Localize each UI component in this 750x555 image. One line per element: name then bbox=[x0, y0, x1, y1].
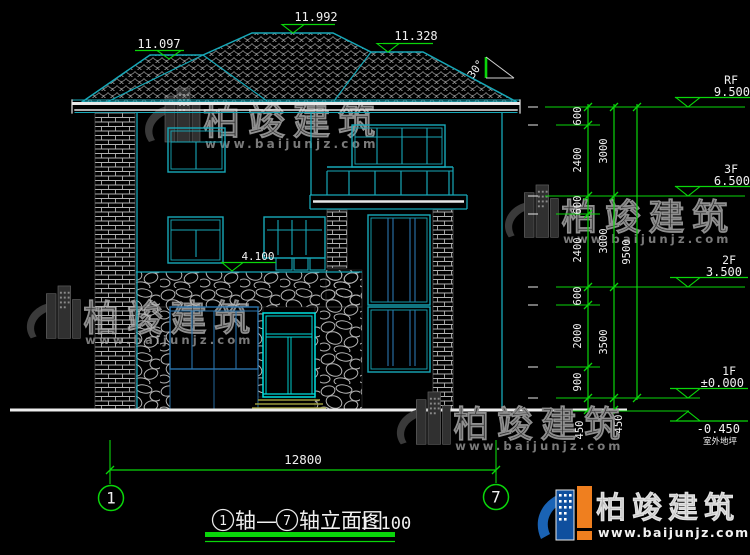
title-scale-text: 1:100 bbox=[360, 514, 411, 534]
dim-3500: 3500 bbox=[598, 329, 610, 354]
watermark-bottom bbox=[397, 392, 628, 453]
footer-logo: 柏竣建筑 www.baijunjz.com bbox=[538, 486, 750, 540]
cad-elevation-drawing: 柏竣建筑 www.baijunjz.com bbox=[0, 0, 750, 555]
left-brick-pier bbox=[95, 113, 135, 410]
dim-2400-a: 2400 bbox=[572, 147, 584, 172]
stone-top-marker: 4.100 bbox=[221, 250, 276, 271]
footer-brand-text: 柏竣建筑 bbox=[596, 491, 740, 526]
axis-1-number: 1 bbox=[106, 489, 116, 508]
level-marker-1f: 1F ±0.000 bbox=[670, 364, 748, 398]
dim-9500: 9500 bbox=[621, 239, 633, 264]
title-axis-1: 1 bbox=[219, 514, 227, 529]
dim-2400-b: 2400 bbox=[572, 237, 584, 262]
level-marker-2f: 2F 3.500 bbox=[670, 253, 748, 287]
title-underline-thick bbox=[205, 532, 395, 537]
dim-600-c: 600 bbox=[572, 287, 584, 306]
roof-dim-left-value: 11.097 bbox=[137, 37, 180, 51]
house-elevation bbox=[10, 33, 627, 410]
roof-dim-main-value: 11.992 bbox=[294, 10, 337, 24]
axis-bubble-7: 7 bbox=[484, 485, 509, 510]
axis-7-number: 7 bbox=[491, 488, 501, 507]
dim-3000-a: 3000 bbox=[598, 138, 610, 163]
porch-pier-right bbox=[433, 210, 453, 410]
roof-dim-right-value: 11.328 bbox=[394, 29, 437, 43]
balcony-railing bbox=[327, 167, 453, 195]
dim-2000: 2000 bbox=[572, 323, 584, 348]
roof-slope-symbol: 30° bbox=[465, 57, 514, 81]
dim-600-a: 600 bbox=[572, 107, 584, 126]
stair-window-upper bbox=[368, 215, 430, 305]
footer-url-text: www.baijunjz.com bbox=[598, 525, 750, 540]
dim-3000-b: 3000 bbox=[598, 228, 610, 253]
level-ground-sublabel: 室外地坪 bbox=[703, 436, 738, 447]
roof-dim-right: 11.328 bbox=[377, 29, 438, 52]
level-marker-ground: -0.450 室外地坪 bbox=[670, 412, 748, 448]
stair-window-lower bbox=[368, 307, 430, 372]
title-mid-text: 轴— bbox=[235, 509, 277, 533]
axis-bubble-1: 1 bbox=[99, 486, 124, 511]
level-marker-3f: 3F 6.500 bbox=[675, 162, 750, 196]
dimension-texts-col1: 600 2400 600 2400 600 2000 900 450 bbox=[572, 107, 586, 440]
dim-900: 900 bbox=[572, 373, 584, 392]
extension-stubs bbox=[528, 107, 538, 398]
watermark-right bbox=[505, 185, 736, 246]
window-2f-left bbox=[168, 217, 223, 263]
level-ground-value: -0.450 bbox=[697, 422, 740, 436]
title-axis-7: 7 bbox=[283, 514, 291, 529]
bottom-dimension: 12800 bbox=[106, 440, 500, 484]
footer-logo-icon bbox=[538, 486, 592, 540]
dimension-texts-col2: 3000 3000 3500 450 bbox=[598, 138, 625, 433]
drawing-title: 1 轴— 7 轴立面图 1:100 bbox=[205, 509, 411, 542]
dim-600-b: 600 bbox=[572, 196, 584, 215]
bottom-dim-value: 12800 bbox=[284, 452, 322, 467]
porch-pier-left bbox=[327, 210, 347, 268]
roof-dim-main: 11.992 bbox=[282, 10, 338, 33]
level-marker-rf: RF 9.500 bbox=[675, 73, 750, 107]
elevation-canvas: 柏竣建筑 www.baijunjz.com bbox=[0, 0, 750, 555]
stone-top-value: 4.100 bbox=[241, 250, 274, 263]
entrance-door bbox=[263, 313, 315, 397]
balcony-slab bbox=[310, 195, 467, 209]
